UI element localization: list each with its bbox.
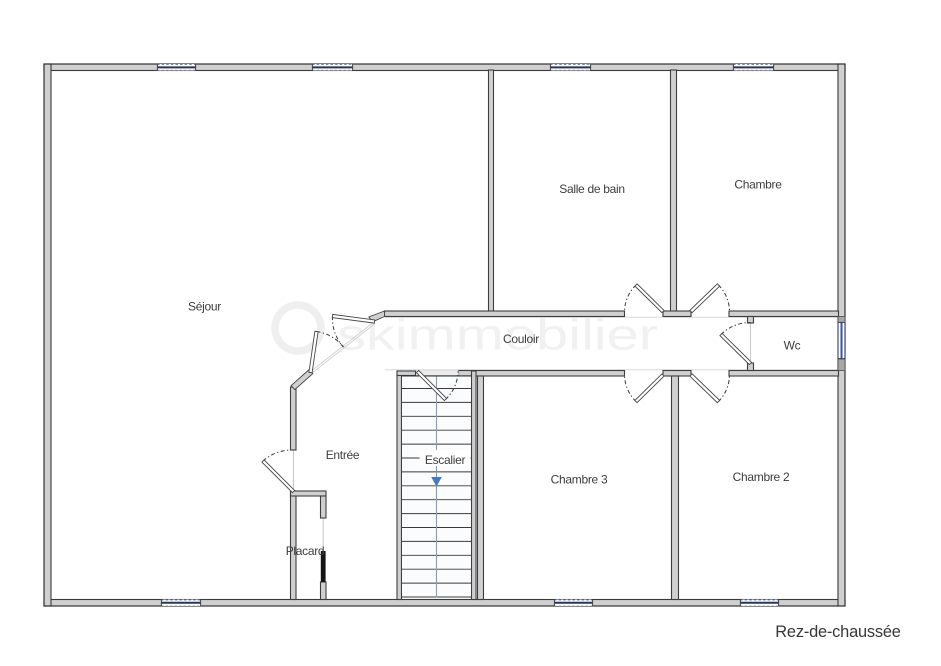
svg-text:Chambre 2: Chambre 2: [733, 470, 790, 484]
svg-text:Escalier: Escalier: [425, 453, 466, 467]
svg-text:Couloir: Couloir: [503, 332, 539, 346]
svg-text:Salle de bain: Salle de bain: [559, 182, 625, 196]
svg-text:Chambre 3: Chambre 3: [551, 473, 608, 487]
svg-text:Séjour: Séjour: [188, 300, 221, 314]
svg-text:Wc: Wc: [784, 339, 801, 353]
svg-text:Rez-de-chaussée: Rez-de-chaussée: [775, 623, 901, 641]
svg-text:Placard: Placard: [286, 544, 325, 558]
svg-text:skimmobilier: skimmobilier: [337, 311, 658, 360]
svg-text:Chambre: Chambre: [734, 178, 782, 192]
svg-text:Entrée: Entrée: [326, 448, 360, 462]
